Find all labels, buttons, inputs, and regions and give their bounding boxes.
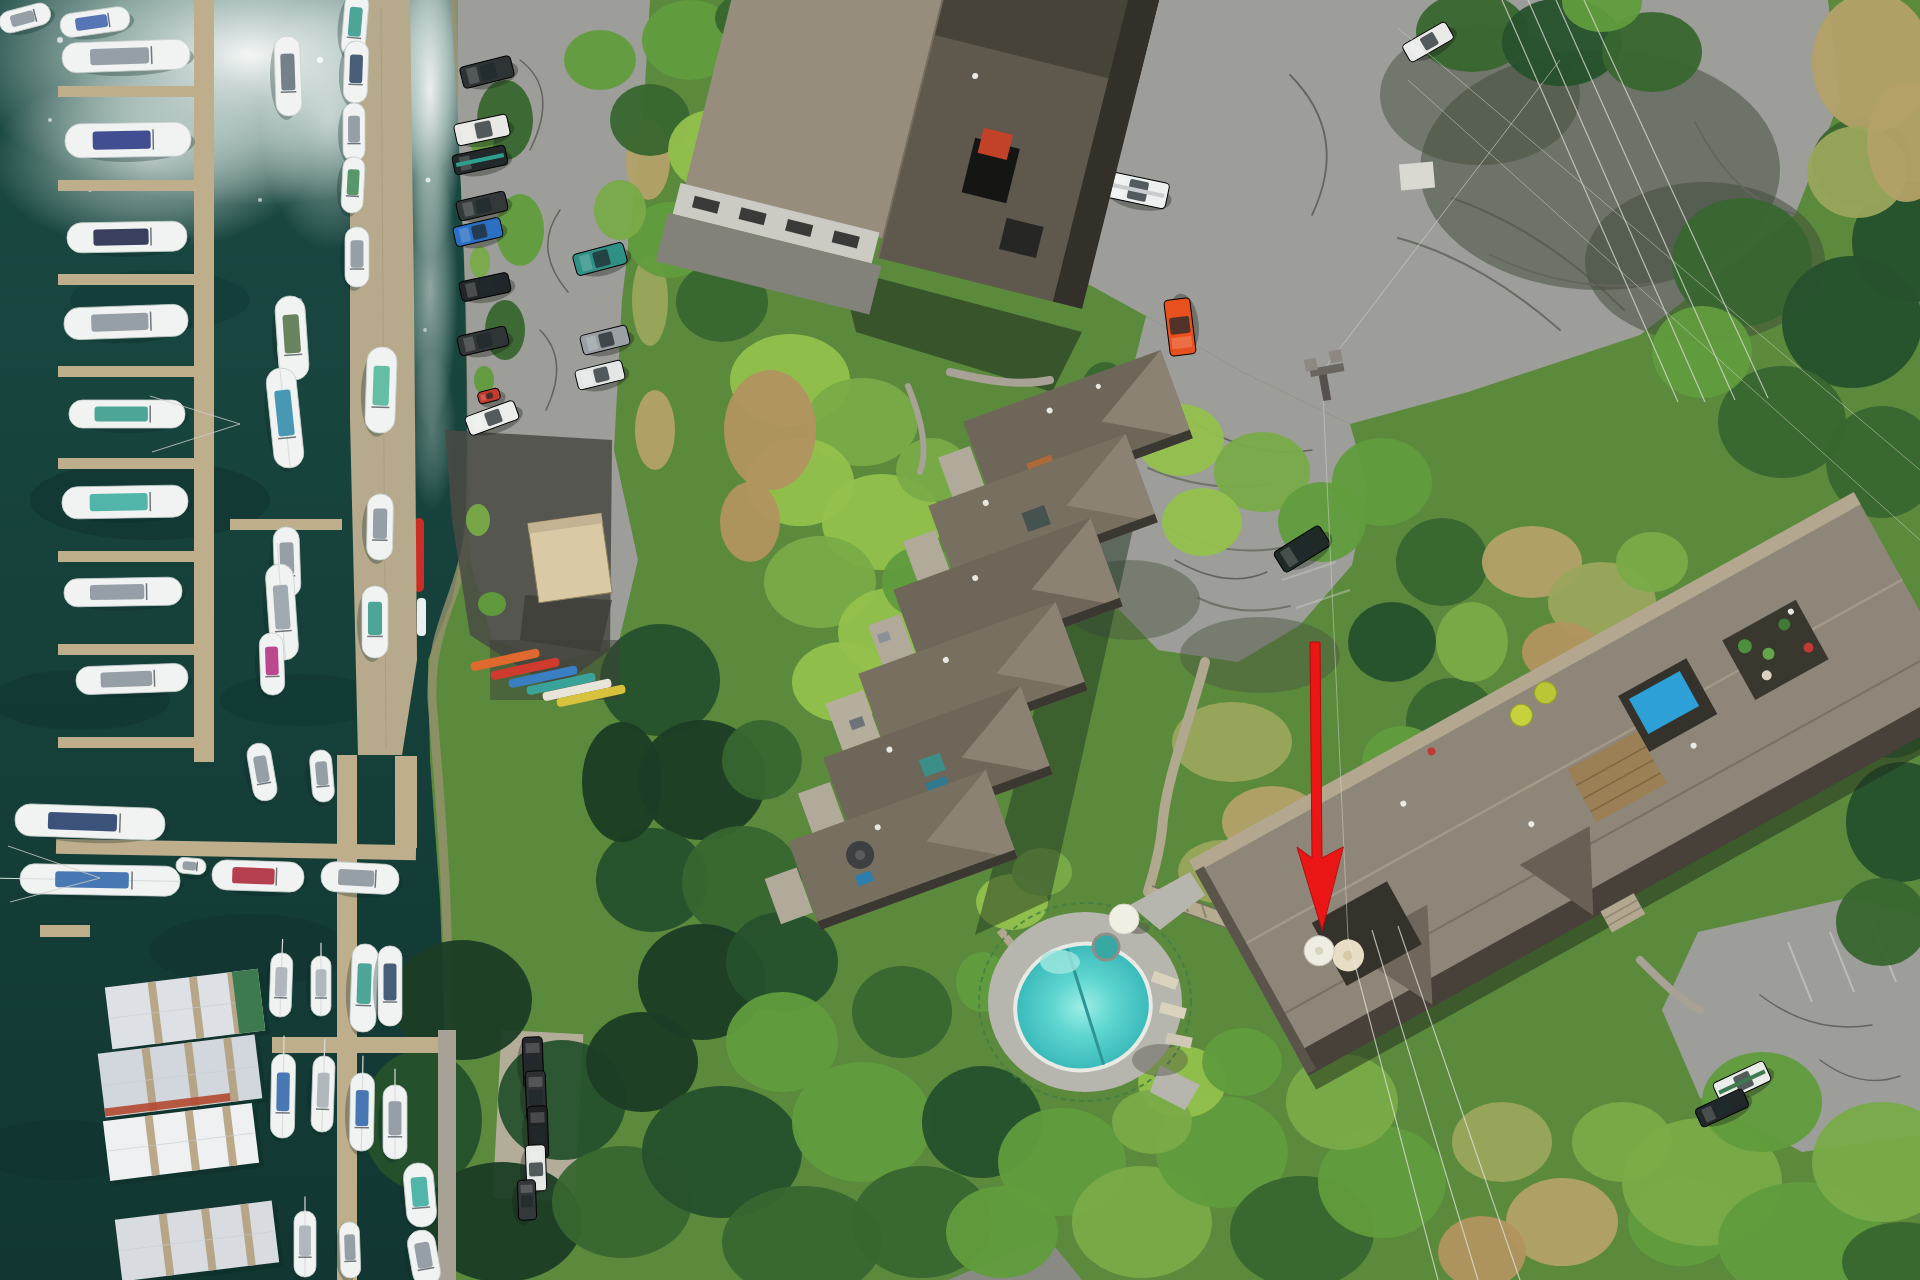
boat (373, 946, 402, 1030)
boat (69, 400, 189, 433)
boat (338, 103, 365, 165)
boat (340, 227, 369, 291)
boathouses (98, 968, 284, 1280)
boat (357, 586, 388, 662)
aerial-photo (0, 0, 1920, 1280)
aerial-photo-canvas (0, 0, 1920, 1280)
